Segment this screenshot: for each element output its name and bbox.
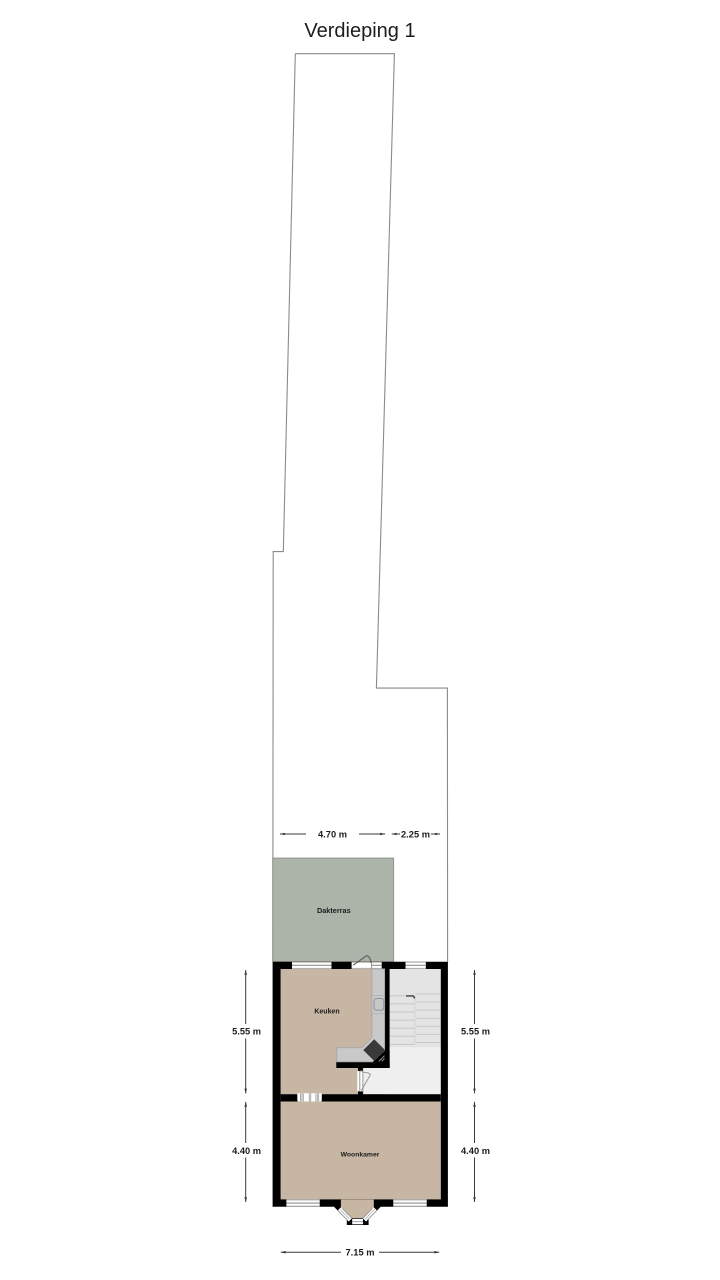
svg-text:Keuken: Keuken bbox=[314, 1009, 339, 1016]
svg-text:Dakterras: Dakterras bbox=[317, 906, 351, 915]
svg-text:2.25 m: 2.25 m bbox=[401, 829, 430, 839]
svg-text:4.40 m: 4.40 m bbox=[461, 1146, 490, 1156]
svg-text:5.55 m: 5.55 m bbox=[461, 1027, 490, 1037]
svg-text:Verdieping 1: Verdieping 1 bbox=[304, 20, 415, 42]
svg-text:4.70 m: 4.70 m bbox=[318, 829, 347, 839]
svg-text:5.55 m: 5.55 m bbox=[232, 1027, 261, 1037]
svg-text:Woonkamer: Woonkamer bbox=[341, 1152, 380, 1159]
svg-text:7.15 m: 7.15 m bbox=[346, 1248, 375, 1258]
svg-text:4.40 m: 4.40 m bbox=[232, 1146, 261, 1156]
